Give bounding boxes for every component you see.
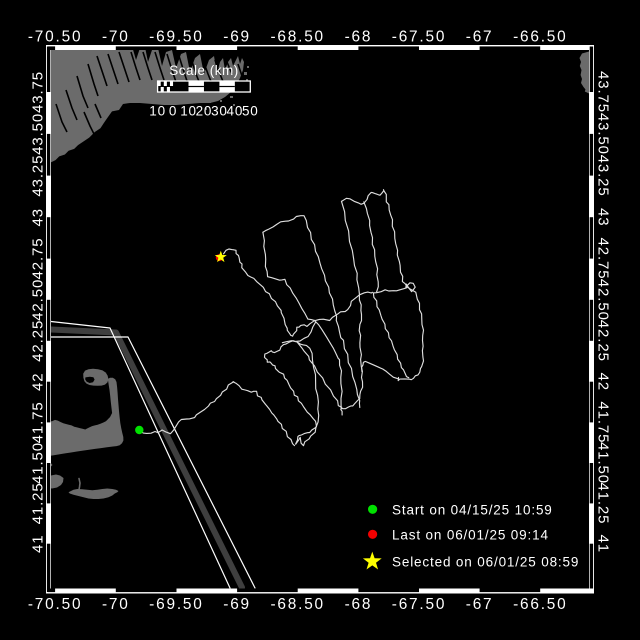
svg-text:-68.50: -68.50 bbox=[270, 596, 324, 613]
svg-text:41.50: 41.50 bbox=[594, 442, 611, 484]
svg-text:Last on 06/01/25 09:14: Last on 06/01/25 09:14 bbox=[392, 527, 549, 542]
svg-text:20: 20 bbox=[196, 104, 213, 119]
svg-text:-68: -68 bbox=[345, 28, 373, 45]
svg-text:41.75: 41.75 bbox=[30, 401, 47, 443]
svg-text:-68: -68 bbox=[345, 596, 373, 613]
svg-text:Selected on 06/01/25 08:59: Selected on 06/01/25 08:59 bbox=[392, 555, 579, 570]
svg-text:42.50: 42.50 bbox=[30, 279, 47, 321]
svg-text:-69.50: -69.50 bbox=[149, 596, 203, 613]
svg-text:41: 41 bbox=[30, 534, 47, 553]
svg-text:-69: -69 bbox=[223, 28, 251, 45]
svg-text:-66.50: -66.50 bbox=[513, 596, 567, 613]
svg-text:-68.50: -68.50 bbox=[270, 28, 324, 45]
svg-text:-67: -67 bbox=[466, 596, 494, 613]
svg-text:-66.50: -66.50 bbox=[513, 28, 567, 45]
svg-text:43.25: 43.25 bbox=[30, 155, 47, 197]
svg-text:-69.50: -69.50 bbox=[149, 28, 203, 45]
svg-text:10: 10 bbox=[180, 104, 197, 119]
svg-text:41: 41 bbox=[594, 534, 611, 553]
svg-text:41.75: 41.75 bbox=[594, 401, 611, 443]
svg-text:42: 42 bbox=[30, 372, 47, 391]
svg-text:0: 0 bbox=[169, 104, 177, 119]
svg-text:42: 42 bbox=[594, 372, 611, 391]
svg-text:42.50: 42.50 bbox=[594, 279, 611, 321]
svg-text:43.25: 43.25 bbox=[594, 155, 611, 197]
svg-text:43.75: 43.75 bbox=[594, 71, 611, 113]
svg-text:41.50: 41.50 bbox=[30, 442, 47, 484]
svg-text:Scale (km): Scale (km) bbox=[169, 63, 239, 78]
svg-text:41.25: 41.25 bbox=[30, 482, 47, 524]
svg-text:42.75: 42.75 bbox=[30, 237, 47, 279]
svg-text:43: 43 bbox=[30, 208, 47, 227]
svg-text:40: 40 bbox=[227, 104, 244, 119]
svg-text:50: 50 bbox=[242, 104, 259, 119]
svg-text:42.75: 42.75 bbox=[594, 237, 611, 279]
svg-text:-70.50: -70.50 bbox=[28, 28, 82, 45]
svg-text:-69: -69 bbox=[223, 596, 251, 613]
svg-text:42.25: 42.25 bbox=[30, 320, 47, 362]
svg-text:41.25: 41.25 bbox=[594, 482, 611, 524]
svg-text:-67.50: -67.50 bbox=[392, 28, 446, 45]
svg-text:43.50: 43.50 bbox=[594, 113, 611, 155]
svg-text:-67: -67 bbox=[466, 28, 494, 45]
svg-text:-67.50: -67.50 bbox=[392, 596, 446, 613]
svg-text:43.75: 43.75 bbox=[30, 71, 47, 113]
svg-text:-70: -70 bbox=[102, 596, 130, 613]
svg-text:10: 10 bbox=[149, 104, 166, 119]
svg-text:43: 43 bbox=[594, 208, 611, 227]
svg-text:43.50: 43.50 bbox=[30, 113, 47, 155]
svg-text:30: 30 bbox=[211, 104, 228, 119]
svg-text:Start on 04/15/25 10:59: Start on 04/15/25 10:59 bbox=[392, 502, 553, 517]
svg-text:-70: -70 bbox=[102, 28, 130, 45]
svg-text:42.25: 42.25 bbox=[594, 320, 611, 362]
svg-text:-70.50: -70.50 bbox=[28, 596, 82, 613]
